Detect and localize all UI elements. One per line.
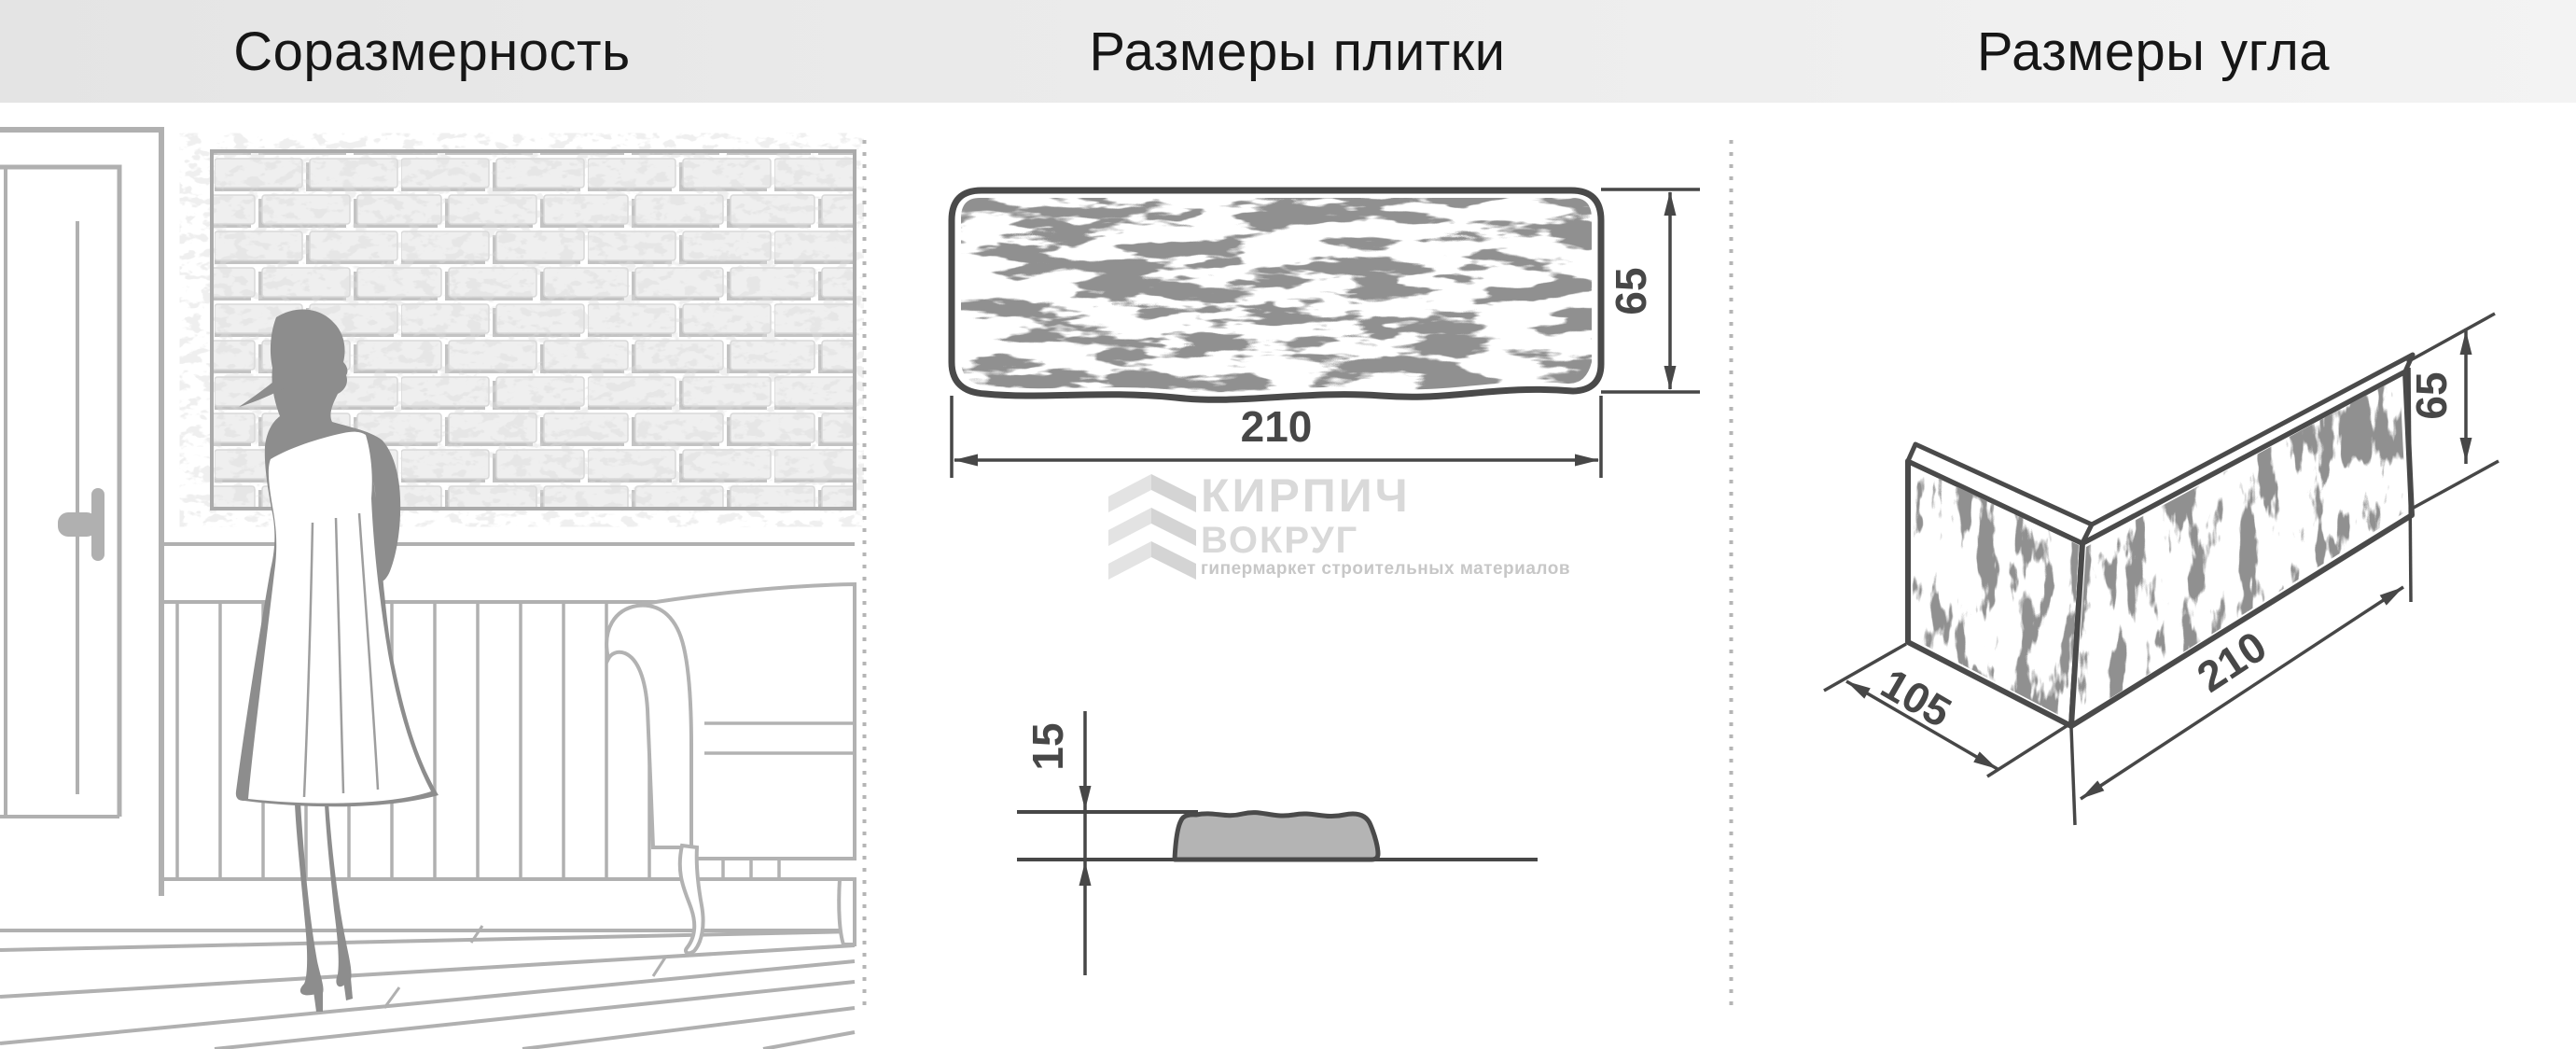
sofa-front-leg bbox=[680, 846, 703, 953]
heel bbox=[313, 991, 323, 1012]
logo-line1: КИРПИЧ bbox=[1201, 469, 1411, 522]
woman-leg bbox=[295, 803, 324, 995]
door bbox=[0, 169, 119, 817]
tile-thickness-label: 15 bbox=[1023, 722, 1072, 770]
logo-brick-icon bbox=[1108, 474, 1196, 580]
infographic-page: Соразмерность Размеры плитки Размеры угл… bbox=[0, 0, 2576, 1049]
drawing-canvas: 65 210 КИРПИЧ ВО bbox=[0, 0, 2576, 1049]
corner-depth-label: 105 bbox=[1873, 659, 1959, 736]
tile-front-texture bbox=[959, 196, 1595, 388]
logo-line2: ВОКРУГ bbox=[1201, 520, 1358, 561]
logo-tagline: гипермаркет строительных материалов bbox=[1201, 559, 1570, 579]
logo: КИРПИЧ ВОКРУГ гипермаркет строительных м… bbox=[1108, 469, 1570, 580]
tile-width-label: 210 bbox=[1241, 402, 1313, 451]
corner-height-label: 65 bbox=[2407, 371, 2456, 419]
proportion-scene bbox=[0, 130, 855, 1049]
sofa-right-leg bbox=[839, 879, 855, 944]
corner-dimensions-drawing: 105 210 65 bbox=[1824, 314, 2499, 825]
tile-profile-shape bbox=[1175, 813, 1378, 860]
door-handle-lever bbox=[58, 512, 97, 537]
tile-profile-drawing: 15 bbox=[1017, 711, 1538, 975]
heel bbox=[343, 978, 353, 1000]
sofa bbox=[606, 584, 855, 953]
tile-height-label: 65 bbox=[1607, 267, 1655, 315]
tile-dimensions-drawing: 65 210 КИРПИЧ ВО bbox=[952, 189, 1700, 975]
floor-boards bbox=[0, 926, 855, 1049]
